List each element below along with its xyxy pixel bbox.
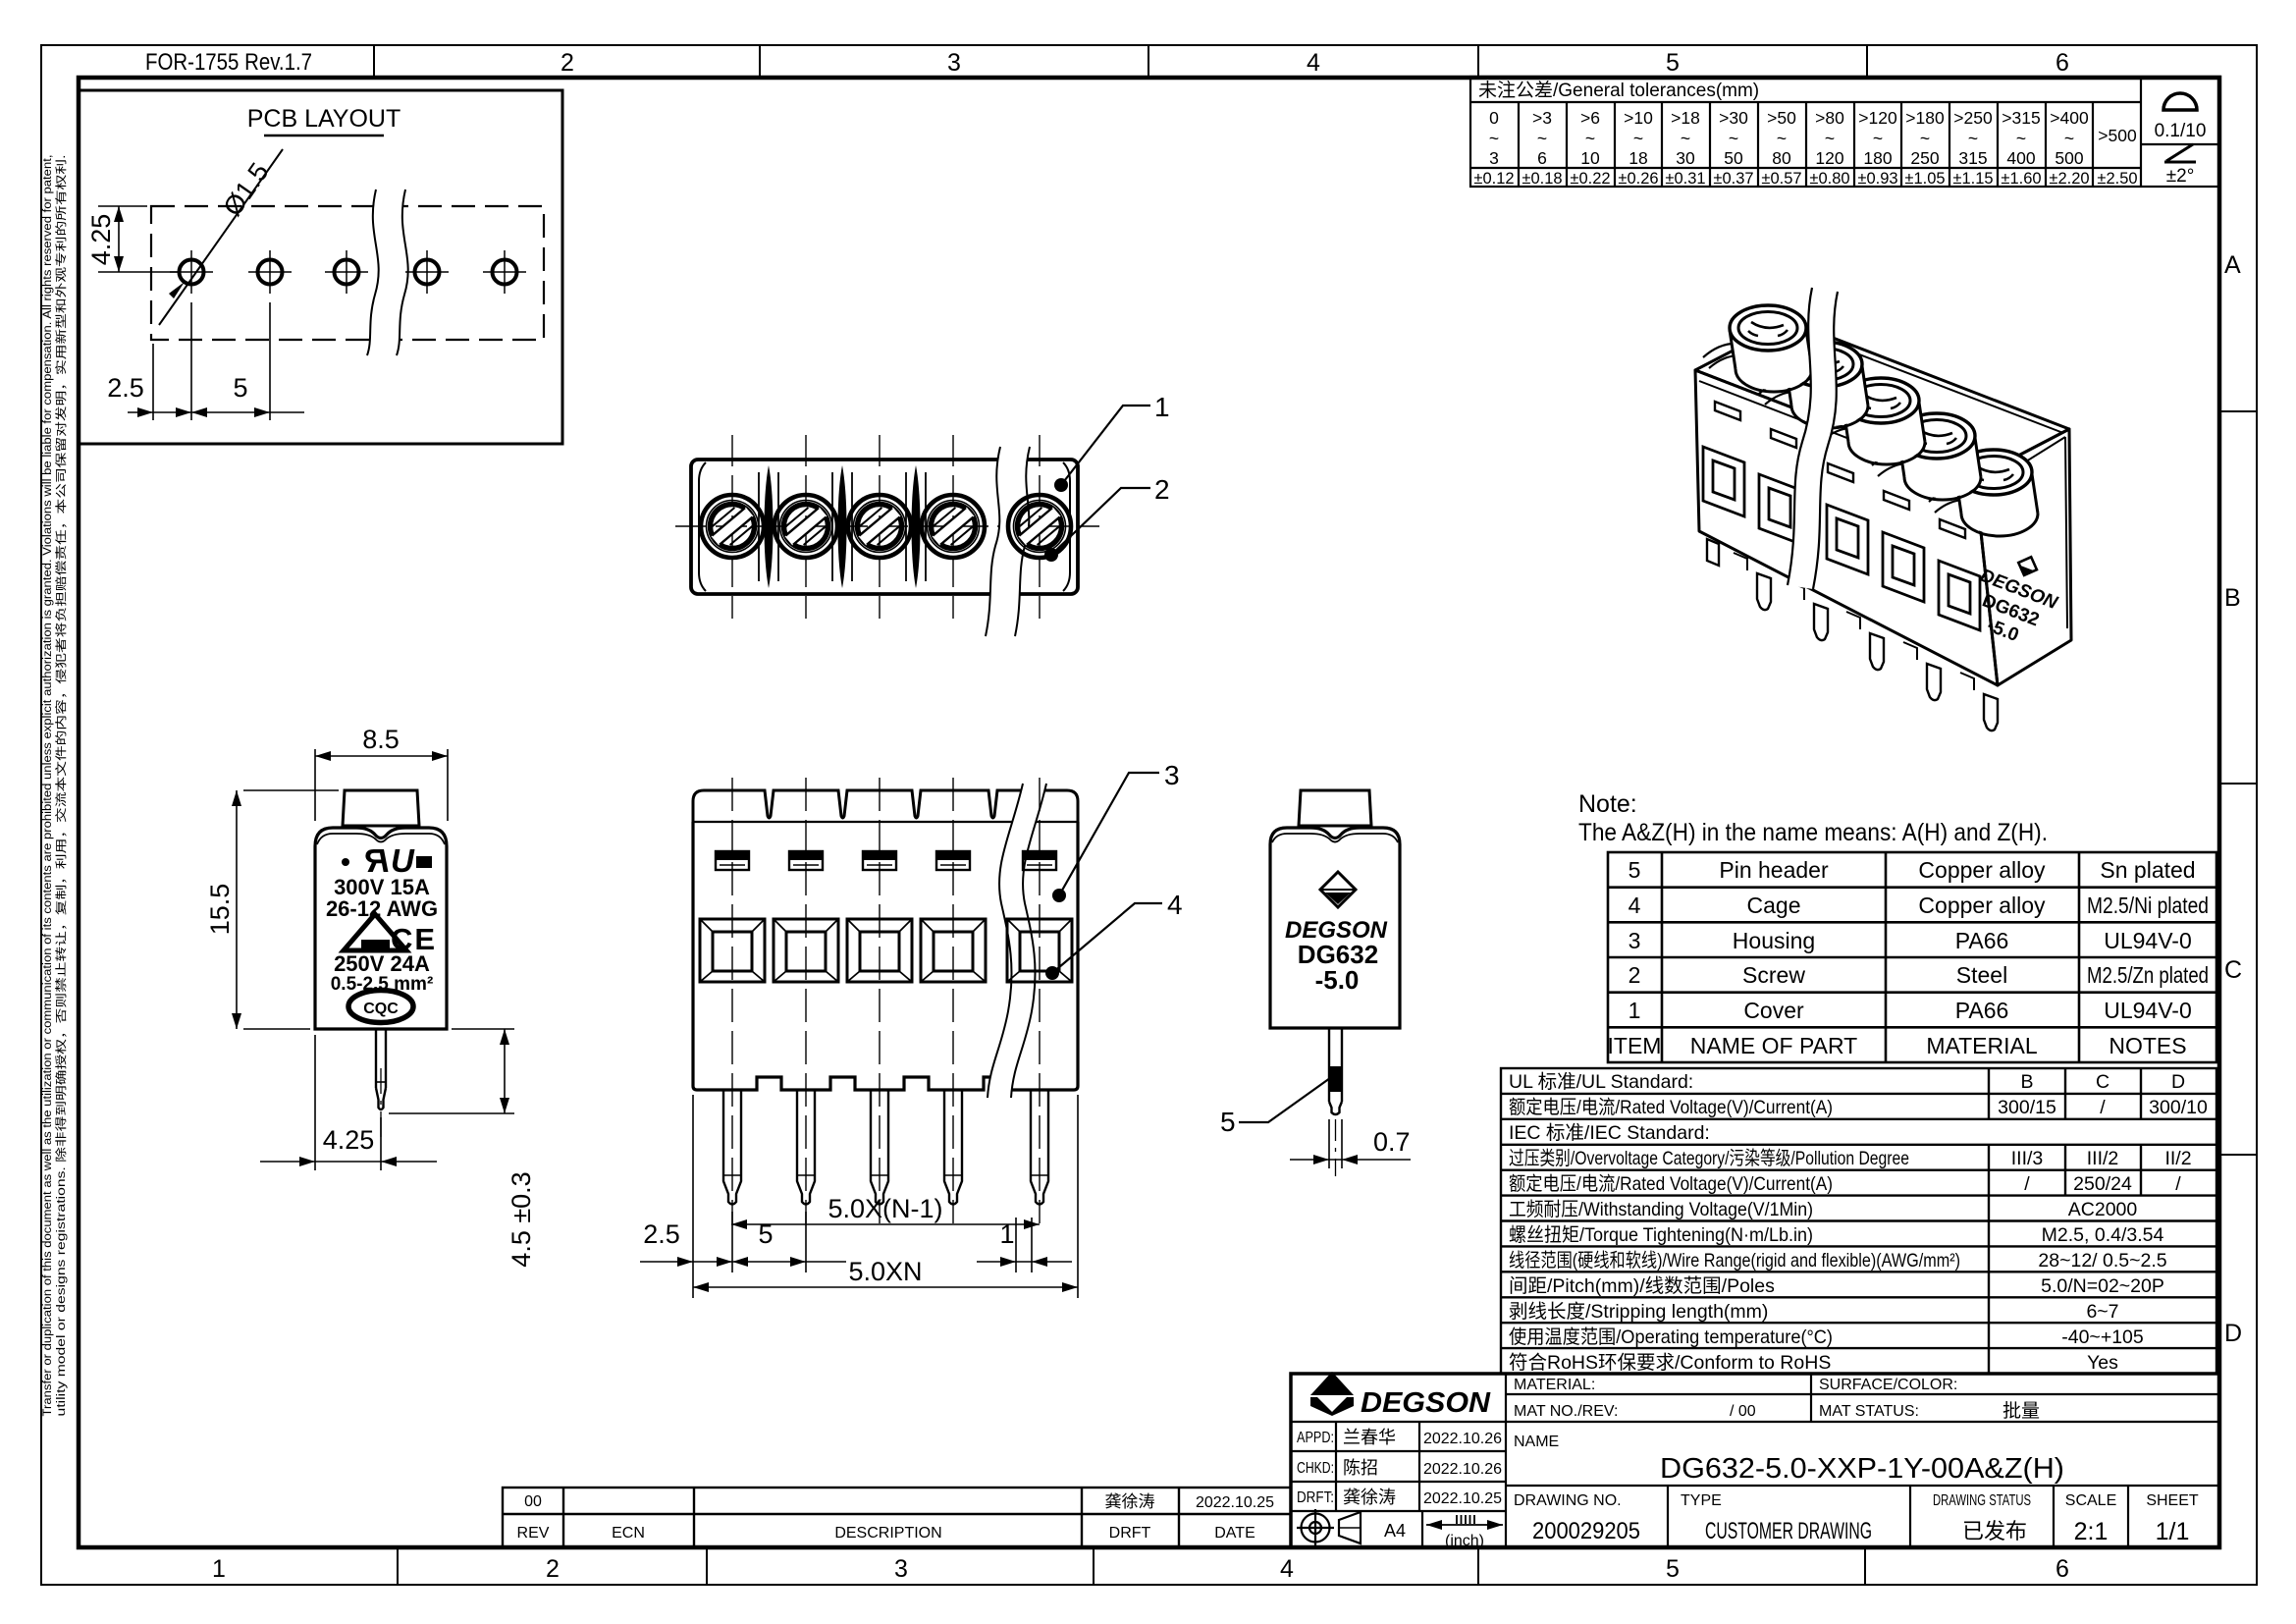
svg-text:~: ~	[2064, 129, 2074, 148]
svg-text:R: R	[365, 842, 389, 879]
svg-text:~: ~	[1489, 129, 1499, 148]
svg-text:已发布: 已发布	[1962, 1519, 2027, 1543]
svg-text:±0.18: ±0.18	[1522, 170, 1562, 188]
svg-text:50: 50	[1724, 148, 1743, 168]
svg-text:2022.10.26: 2022.10.26	[1423, 1461, 1502, 1478]
svg-text:~: ~	[1873, 129, 1883, 148]
svg-text:B: B	[2224, 584, 2241, 612]
svg-text:Note:: Note:	[1578, 790, 1637, 818]
svg-text:>18: >18	[1671, 108, 1700, 128]
svg-text:6: 6	[1537, 148, 1547, 168]
svg-text:>315: >315	[2002, 108, 2040, 128]
svg-text:Yes: Yes	[2087, 1352, 2118, 1374]
svg-text:NAME OF PART: NAME OF PART	[1690, 1033, 1857, 1058]
svg-text:250V 24A: 250V 24A	[334, 951, 430, 976]
svg-text:>10: >10	[1624, 108, 1653, 128]
svg-text:~: ~	[1729, 129, 1738, 148]
svg-text:工频耐压/Withstanding Voltage(V/1M: 工频耐压/Withstanding Voltage(V/1Min)	[1509, 1199, 1813, 1220]
svg-text:5: 5	[233, 373, 247, 403]
svg-text:2.5: 2.5	[643, 1219, 680, 1249]
svg-text:间距/Pitch(mm)/线数范围/Poles: 间距/Pitch(mm)/线数范围/Poles	[1509, 1275, 1775, 1297]
svg-text:陈招: 陈招	[1343, 1458, 1378, 1478]
svg-text:500: 500	[2055, 148, 2083, 168]
svg-text:D: D	[2171, 1071, 2185, 1093]
svg-text:Copper alloy: Copper alloy	[1918, 857, 2046, 883]
svg-text:SCALE: SCALE	[2065, 1492, 2116, 1509]
svg-text:120: 120	[1815, 148, 1843, 168]
svg-text:PA66: PA66	[1955, 998, 2009, 1023]
svg-text:1: 1	[212, 1555, 226, 1583]
svg-text:15.5: 15.5	[205, 884, 235, 936]
svg-text:APPD:: APPD:	[1297, 1430, 1334, 1446]
svg-text:Housing: Housing	[1733, 928, 1815, 953]
svg-text:5.0XN: 5.0XN	[848, 1257, 922, 1286]
svg-text:-40~+105: -40~+105	[2061, 1326, 2144, 1348]
svg-text:额定电压/电流/Rated Voltage(V)/Curre: 额定电压/电流/Rated Voltage(V)/Current(A)	[1509, 1173, 1833, 1195]
svg-text:Steel: Steel	[1956, 962, 2007, 988]
svg-text:>3: >3	[1532, 108, 1552, 128]
svg-text:±2.50: ±2.50	[2097, 170, 2137, 188]
svg-text:UL 标准/UL Standard:: UL 标准/UL Standard:	[1509, 1071, 1693, 1093]
svg-text:/: /	[2024, 1173, 2030, 1195]
svg-text:D: D	[2224, 1320, 2242, 1347]
svg-text:MAT STATUS:: MAT STATUS:	[1819, 1403, 1919, 1420]
svg-text:ECN: ECN	[612, 1525, 645, 1542]
svg-text:U: U	[391, 842, 415, 879]
svg-text:±0.31: ±0.31	[1665, 170, 1705, 188]
svg-text:200029205: 200029205	[1532, 1518, 1640, 1544]
svg-text:5.0X(N-1): 5.0X(N-1)	[828, 1194, 942, 1223]
svg-text:CQC: CQC	[363, 1001, 399, 1017]
svg-text:3: 3	[1489, 148, 1499, 168]
svg-text:10: 10	[1580, 148, 1600, 168]
svg-text:2.5: 2.5	[107, 373, 144, 403]
svg-text:utility model or designs regis: utility model or designs registrations. …	[54, 155, 68, 1417]
svg-text:SHEET: SHEET	[2146, 1492, 2199, 1509]
svg-text:兰春华: 兰春华	[1343, 1428, 1396, 1447]
svg-text:II/2: II/2	[2164, 1148, 2191, 1169]
svg-text:DG632-5.0-XXP-1Y-00A&Z(H): DG632-5.0-XXP-1Y-00A&Z(H)	[1660, 1453, 2064, 1485]
svg-text:MATERIAL: MATERIAL	[1926, 1033, 2038, 1058]
svg-text:~: ~	[1633, 129, 1643, 148]
svg-text:1: 1	[999, 1219, 1014, 1249]
svg-text:PA66: PA66	[1955, 928, 2009, 953]
svg-text:-5.0: -5.0	[1315, 965, 1360, 995]
svg-text:±0.26: ±0.26	[1618, 170, 1658, 188]
svg-text:DRFT: DRFT	[1109, 1525, 1151, 1542]
svg-text:300/15: 300/15	[1998, 1097, 2056, 1118]
svg-text:M2.5/Zn plated: M2.5/Zn plated	[2087, 962, 2209, 988]
svg-text:±1.05: ±1.05	[1904, 170, 1945, 188]
svg-text:0.7: 0.7	[1373, 1127, 1411, 1157]
svg-text:1/1: 1/1	[2156, 1518, 2190, 1545]
svg-text:±0.80: ±0.80	[1809, 170, 1849, 188]
svg-text:1: 1	[1154, 392, 1170, 422]
svg-text:2022.10.25: 2022.10.25	[1423, 1490, 1502, 1507]
svg-text:线径范围(硬线和软线)/Wire Range(rigid a: 线径范围(硬线和软线)/Wire Range(rigid and flexibl…	[1509, 1250, 1960, 1272]
svg-text:6~7: 6~7	[2086, 1301, 2118, 1323]
svg-text:/: /	[2175, 1173, 2181, 1195]
svg-text:80: 80	[1772, 148, 1791, 168]
svg-text:8.5: 8.5	[362, 725, 400, 754]
svg-text:±0.37: ±0.37	[1713, 170, 1753, 188]
svg-text:M2.5/Ni plated: M2.5/Ni plated	[2087, 893, 2209, 918]
svg-text:2: 2	[1629, 962, 1641, 988]
svg-text:>250: >250	[1953, 108, 1993, 128]
svg-text:±0.93: ±0.93	[1857, 170, 1897, 188]
svg-text:DATE: DATE	[1214, 1525, 1255, 1542]
svg-text:CUSTOMER DRAWING: CUSTOMER DRAWING	[1705, 1518, 1872, 1544]
svg-text:4: 4	[1167, 890, 1183, 920]
svg-text:250/24: 250/24	[2073, 1173, 2132, 1195]
svg-text:DESCRIPTION: DESCRIPTION	[834, 1525, 941, 1542]
svg-text:额定电压/电流/Rated Voltage(V)/Curre: 额定电压/电流/Rated Voltage(V)/Current(A)	[1509, 1097, 1833, 1118]
svg-text:UL94V-0: UL94V-0	[2104, 998, 2192, 1023]
svg-text:>30: >30	[1719, 108, 1748, 128]
svg-text:4.25: 4.25	[323, 1125, 375, 1155]
svg-text:2:1: 2:1	[2074, 1518, 2109, 1545]
svg-text:~: ~	[1537, 129, 1547, 148]
svg-text:NOTES: NOTES	[2109, 1033, 2186, 1058]
svg-text:5: 5	[1666, 49, 1680, 77]
svg-text:5.0/N=02~20P: 5.0/N=02~20P	[2041, 1275, 2164, 1297]
svg-text:A4: A4	[1384, 1521, 1406, 1541]
svg-text:Pin header: Pin header	[1719, 857, 1829, 883]
svg-text:Copper alloy: Copper alloy	[1918, 893, 2046, 918]
svg-text:>80: >80	[1815, 108, 1844, 128]
svg-text:REV: REV	[517, 1525, 550, 1542]
svg-text:龚徐涛: 龚徐涛	[1343, 1488, 1396, 1507]
svg-text:SURFACE/COLOR:: SURFACE/COLOR:	[1819, 1377, 1957, 1393]
svg-text:Cage: Cage	[1747, 893, 1801, 918]
svg-text:>400: >400	[2050, 108, 2089, 128]
svg-text:The A&Z(H) in the name means:: The A&Z(H) in the name means: A(H) and Z…	[1578, 819, 2048, 846]
svg-text:IEC 标准/IEC Standard:: IEC 标准/IEC Standard:	[1509, 1122, 1710, 1144]
svg-text:>6: >6	[1580, 108, 1600, 128]
svg-text:3: 3	[894, 1555, 908, 1583]
svg-text:/: /	[2100, 1097, 2106, 1118]
svg-text:±0.12: ±0.12	[1473, 170, 1514, 188]
svg-text:剥线长度/Stripping length(mm): 剥线长度/Stripping length(mm)	[1509, 1301, 1768, 1323]
svg-text:6: 6	[2056, 49, 2069, 77]
svg-text:6: 6	[2056, 1555, 2069, 1583]
svg-text:0: 0	[1489, 108, 1499, 128]
svg-text:3: 3	[1164, 760, 1180, 790]
svg-text:4.5 ±0.3: 4.5 ±0.3	[507, 1171, 536, 1267]
svg-text:TYPE: TYPE	[1681, 1492, 1722, 1509]
svg-text:28~12/ 0.5~2.5: 28~12/ 0.5~2.5	[2038, 1250, 2166, 1272]
svg-text:4: 4	[1307, 49, 1320, 77]
svg-text:~: ~	[1681, 129, 1690, 148]
svg-text:±1.15: ±1.15	[1952, 170, 1993, 188]
svg-text:00: 00	[524, 1493, 542, 1510]
svg-text:4: 4	[1629, 893, 1641, 918]
svg-text:FOR-1755 Rev.1.7: FOR-1755 Rev.1.7	[145, 49, 312, 76]
svg-text:NAME: NAME	[1514, 1434, 1559, 1450]
svg-text:ITEM: ITEM	[1608, 1033, 1662, 1058]
svg-text:未注公差/General tolerances(mm): 未注公差/General tolerances(mm)	[1478, 80, 1759, 101]
svg-text:AC2000: AC2000	[2068, 1199, 2138, 1220]
svg-text:180: 180	[1863, 148, 1892, 168]
svg-text:DRFT:: DRFT:	[1297, 1489, 1334, 1506]
svg-text:±0.22: ±0.22	[1570, 170, 1610, 188]
svg-text:~: ~	[1777, 129, 1787, 148]
svg-text:DRAWING STATUS: DRAWING STATUS	[1933, 1492, 2031, 1509]
svg-text:M2.5, 0.4/3.54: M2.5, 0.4/3.54	[2042, 1224, 2164, 1246]
svg-text:5: 5	[1220, 1107, 1236, 1137]
svg-text:螺丝扭矩/Torque Tightening(N·m/Lb.: 螺丝扭矩/Torque Tightening(N·m/Lb.in)	[1509, 1224, 1813, 1246]
svg-text:2: 2	[1154, 474, 1170, 505]
svg-text:~: ~	[1920, 129, 1930, 148]
svg-text:PCB LAYOUT: PCB LAYOUT	[247, 105, 401, 133]
svg-text:~: ~	[1585, 129, 1595, 148]
svg-text:MATERIAL:: MATERIAL:	[1514, 1377, 1595, 1393]
svg-text:5: 5	[1629, 857, 1641, 883]
svg-text:符合RoHS环保要求/Conform to RoHS: 符合RoHS环保要求/Conform to RoHS	[1509, 1352, 1831, 1374]
svg-text:批量: 批量	[2002, 1400, 2040, 1422]
svg-text:250: 250	[1910, 148, 1939, 168]
svg-text:>500: >500	[2098, 126, 2137, 145]
svg-text:>180: >180	[1905, 108, 1945, 128]
svg-text:400: 400	[2006, 148, 2035, 168]
svg-text:26-12 AWG: 26-12 AWG	[326, 896, 438, 921]
svg-text:过压类别/Overvoltage Category/污染等级: 过压类别/Overvoltage Category/污染等级/Pollution…	[1509, 1148, 1909, 1169]
svg-text:MAT NO./REV:: MAT NO./REV:	[1514, 1403, 1618, 1420]
svg-text:315: 315	[1958, 148, 1987, 168]
svg-text:使用温度范围/Operating temperature(°: 使用温度范围/Operating temperature(°C)	[1509, 1326, 1833, 1348]
svg-text:4.25: 4.25	[86, 214, 116, 266]
svg-text:~: ~	[2016, 129, 2026, 148]
svg-text:±0.57: ±0.57	[1761, 170, 1801, 188]
svg-text:龚徐涛: 龚徐涛	[1105, 1492, 1155, 1511]
svg-text:~: ~	[1825, 129, 1835, 148]
svg-text:Screw: Screw	[1742, 962, 1805, 988]
svg-text:A: A	[2224, 251, 2241, 279]
svg-text:2022.10.25: 2022.10.25	[1196, 1494, 1274, 1511]
svg-text:18: 18	[1629, 148, 1647, 168]
svg-text:4: 4	[1280, 1555, 1294, 1583]
svg-text:±2.20: ±2.20	[2049, 170, 2089, 188]
svg-text:1: 1	[1629, 998, 1641, 1023]
svg-text:Cover: Cover	[1743, 998, 1804, 1023]
svg-text:DEGSON: DEGSON	[1361, 1387, 1491, 1419]
svg-text:CHKD:: CHKD:	[1297, 1460, 1334, 1477]
svg-text:30: 30	[1676, 148, 1695, 168]
svg-text:DRAWING NO.: DRAWING NO.	[1514, 1492, 1622, 1509]
svg-text:0.1/10: 0.1/10	[2155, 121, 2207, 141]
svg-text:UL94V-0: UL94V-0	[2104, 928, 2192, 953]
svg-text:300/10: 300/10	[2149, 1097, 2208, 1118]
svg-text:5: 5	[1666, 1555, 1680, 1583]
svg-text:2: 2	[561, 49, 574, 77]
svg-text:>50: >50	[1767, 108, 1796, 128]
svg-text:~: ~	[1968, 129, 1978, 148]
svg-text:3: 3	[1629, 928, 1641, 953]
svg-text:/ 00: / 00	[1730, 1403, 1756, 1420]
svg-text:±1.60: ±1.60	[2001, 170, 2041, 188]
svg-text:2: 2	[546, 1555, 560, 1583]
svg-text:Transfer or duplication of thi: Transfer or duplication of this document…	[42, 155, 54, 1417]
svg-text:±2°: ±2°	[2166, 166, 2195, 187]
svg-text:3: 3	[947, 49, 961, 77]
svg-text:III/3: III/3	[2011, 1148, 2044, 1169]
svg-text:C: C	[2224, 956, 2242, 984]
svg-text:III/2: III/2	[2087, 1148, 2119, 1169]
svg-text:>120: >120	[1858, 108, 1897, 128]
svg-text:2022.10.26: 2022.10.26	[1423, 1431, 1502, 1447]
svg-text:5: 5	[758, 1219, 773, 1249]
svg-text:(inch): (inch)	[1445, 1533, 1484, 1549]
svg-text:Sn plated: Sn plated	[2100, 857, 2195, 883]
svg-text:B: B	[2020, 1071, 2033, 1093]
svg-text:C: C	[2096, 1071, 2109, 1093]
